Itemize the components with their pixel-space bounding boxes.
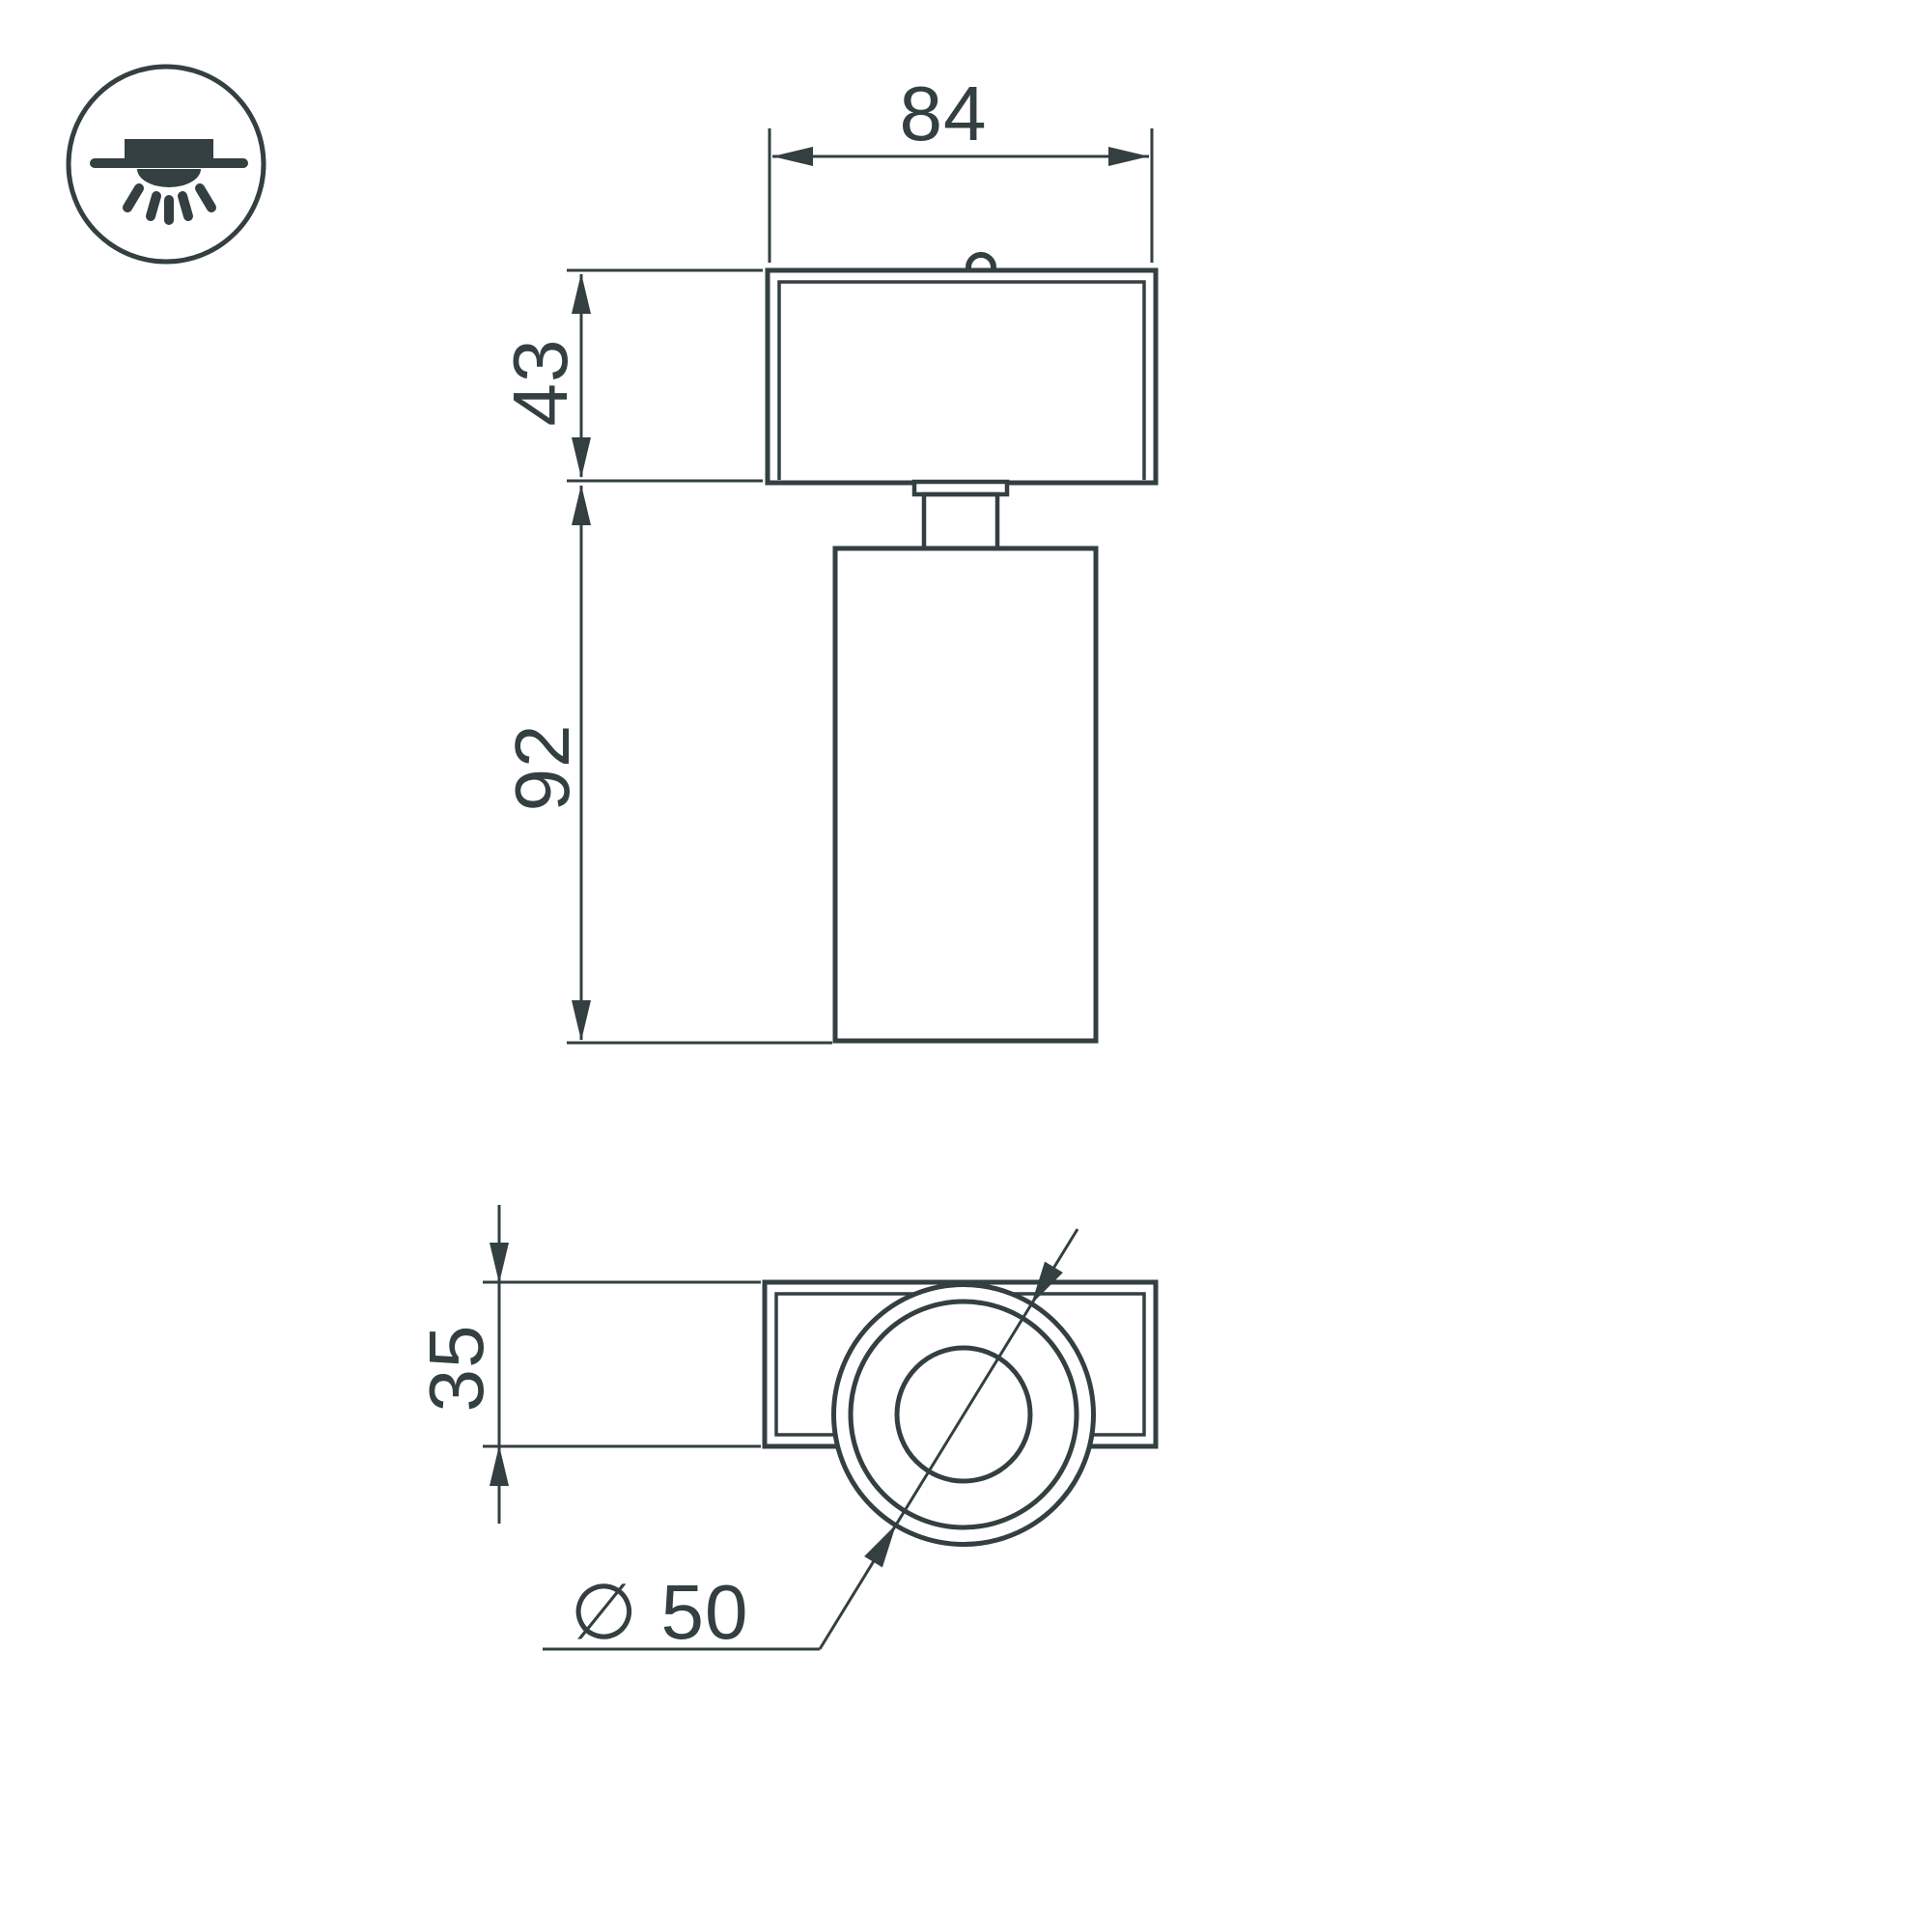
icon-light-rays [127, 188, 211, 220]
dimension-width-84: 84 [770, 70, 1152, 263]
dim-body-height-label: 92 [499, 724, 585, 812]
track-head-inner [779, 282, 1144, 480]
dimension-base-depth-35: 35 [413, 1205, 761, 1524]
dimension-head-height-43: 43 [497, 270, 763, 481]
bottom-view [765, 1282, 1156, 1545]
technical-drawing-canvas: 84 43 92 35 ∅ 50 [0, 0, 1932, 1932]
icon-light-dome [137, 169, 201, 187]
track-head-outer [768, 270, 1156, 483]
arrowhead-left [772, 147, 813, 166]
luminaire-dimension-drawing: 84 43 92 35 ∅ 50 [0, 0, 1932, 1932]
arrowhead-down [490, 1243, 509, 1283]
cylinder-body [835, 548, 1096, 1041]
dimension-body-height-92: 92 [499, 485, 832, 1043]
arrowhead-down [572, 1000, 591, 1041]
dim-base-depth-label: 35 [413, 1325, 499, 1413]
arrowhead-up [572, 273, 591, 314]
arrowhead-up [572, 485, 591, 525]
dim-diameter-label: ∅ 50 [571, 1569, 749, 1655]
dim-width-label: 84 [900, 70, 988, 156]
arrowhead-lower [864, 1525, 896, 1567]
front-view [768, 255, 1156, 1041]
icon-fixture-body [125, 139, 213, 161]
dim-head-height-label: 43 [497, 339, 583, 427]
arrowhead-up [490, 1445, 509, 1486]
arrowhead-right [1108, 147, 1149, 166]
arrowhead-down [572, 437, 591, 478]
swivel-neck [924, 494, 997, 548]
surface-mount-light-icon [69, 67, 264, 262]
